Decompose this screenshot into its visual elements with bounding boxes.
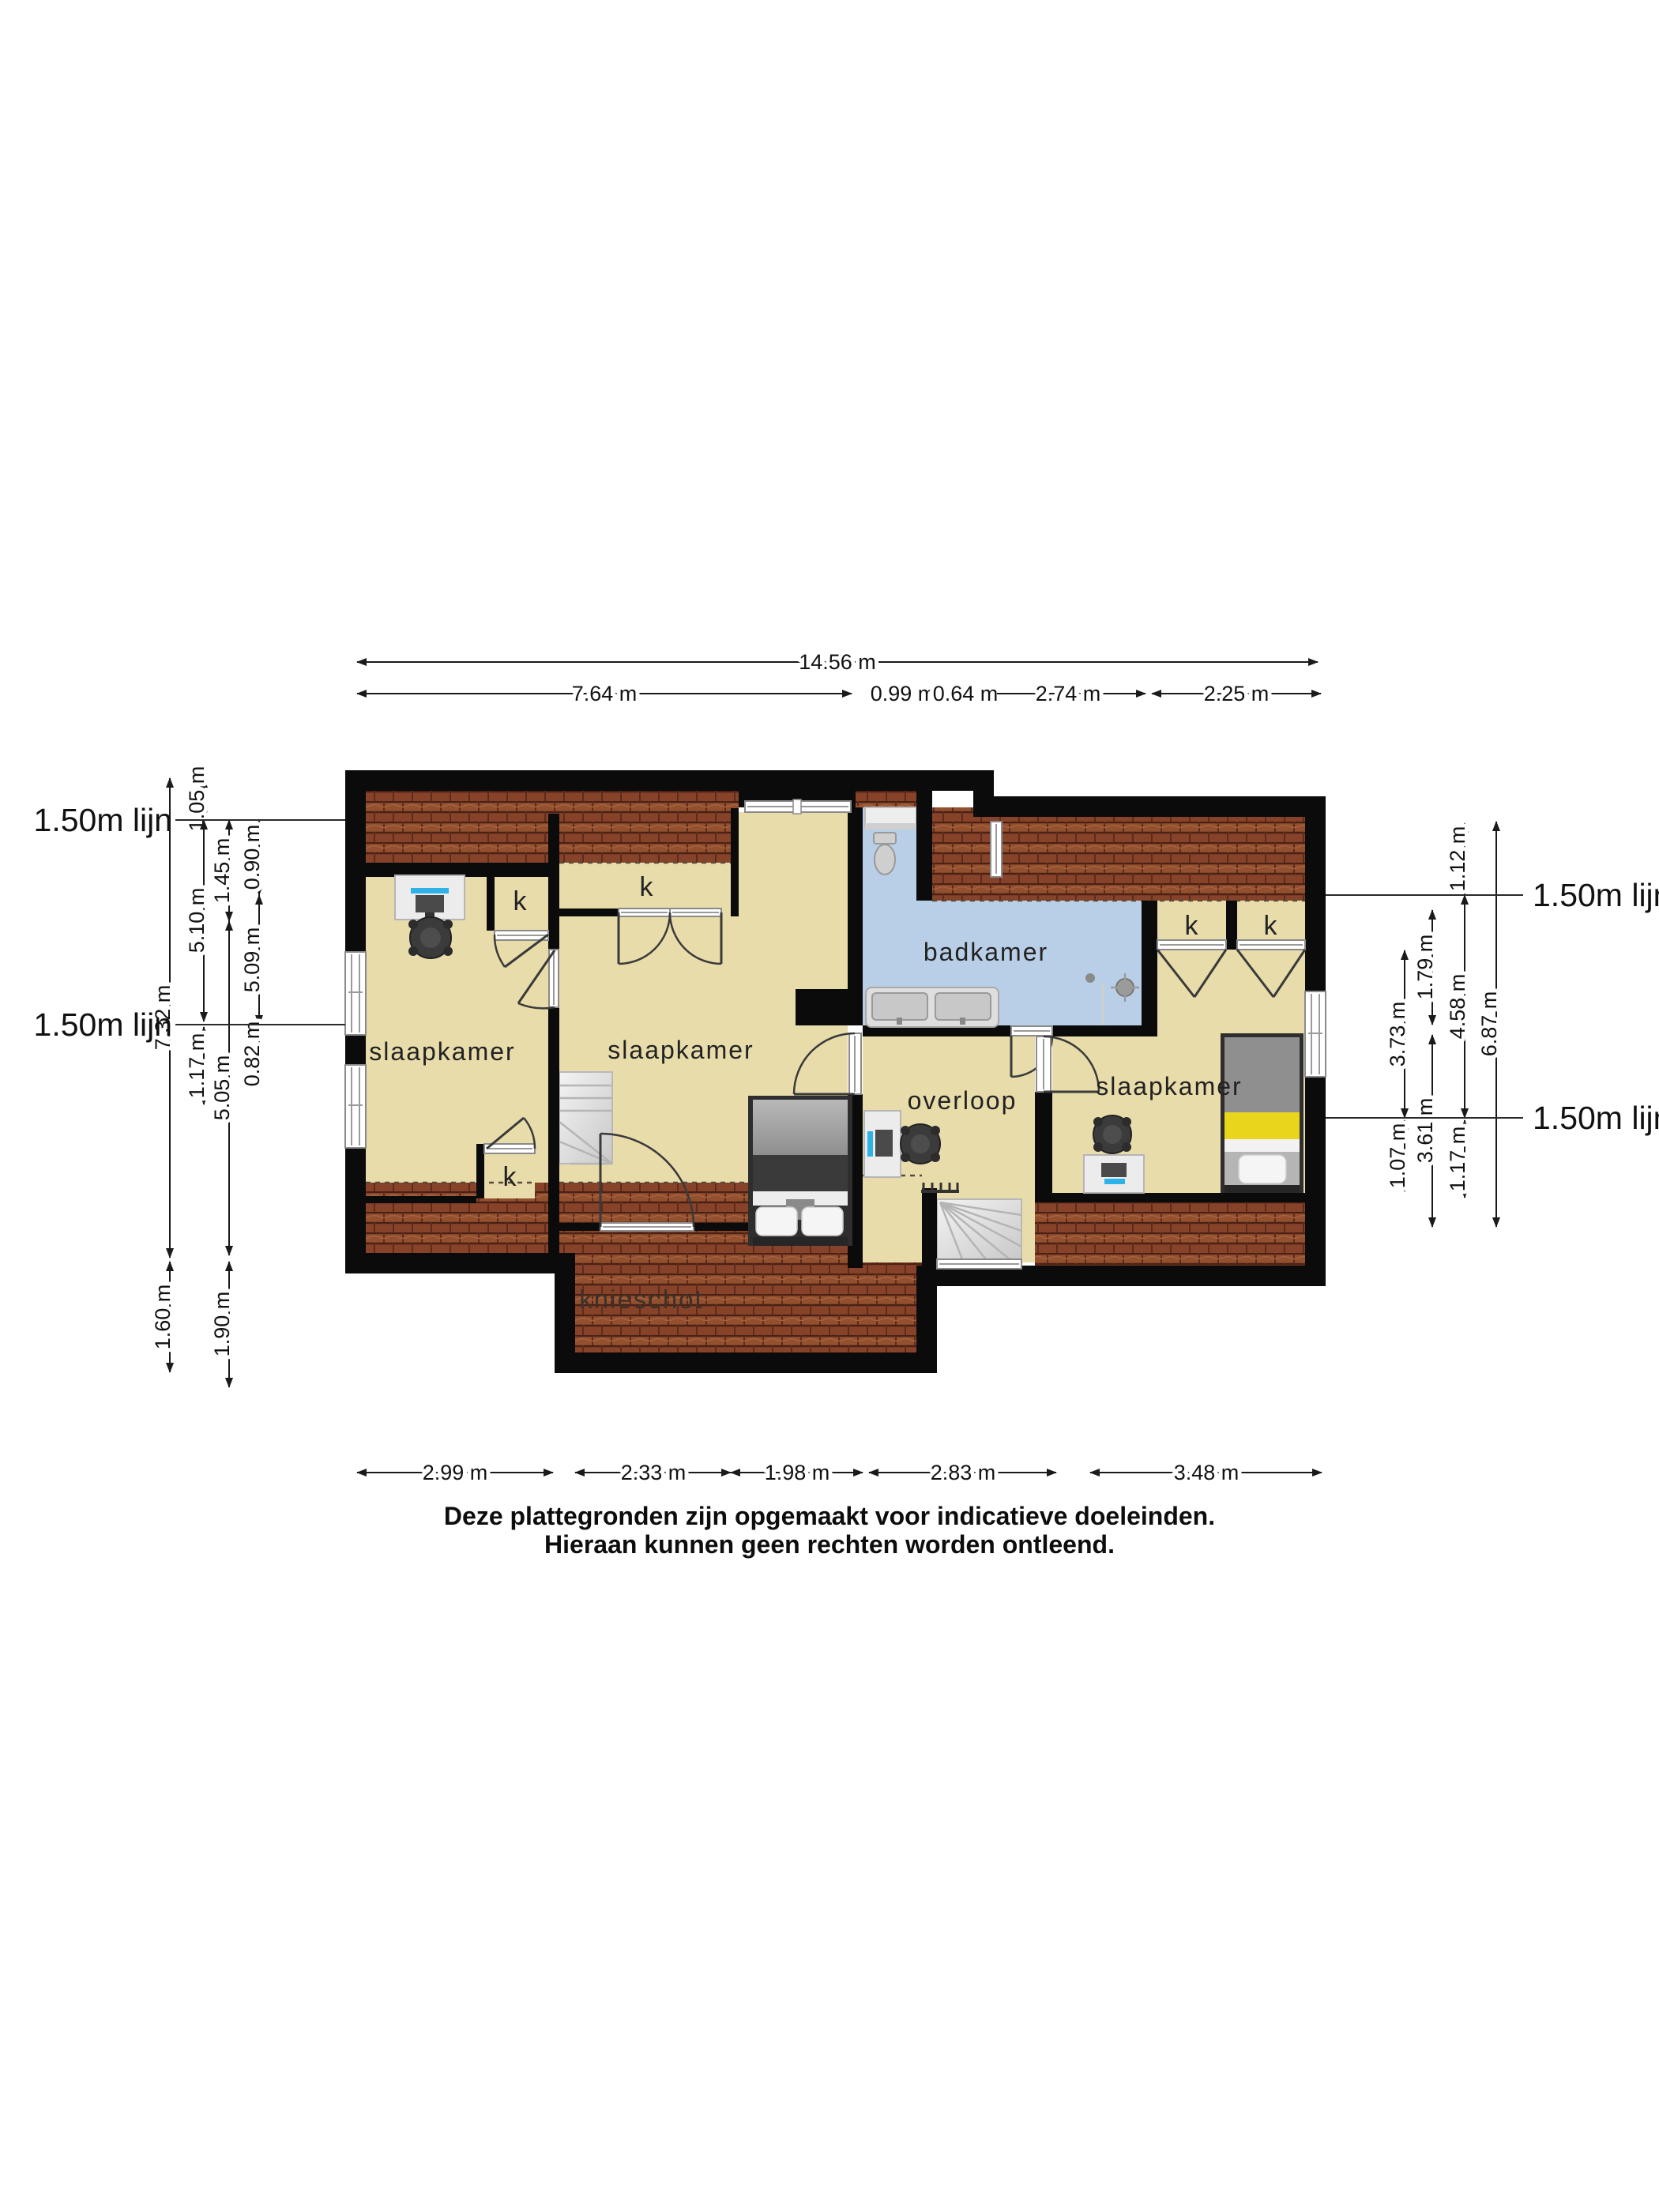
dim-label-top-1: 7.64 m	[572, 682, 638, 705]
dim-label-right-112: 1.12 m	[1446, 826, 1469, 892]
closet-label-left-bottom: k	[503, 1162, 517, 1192]
toilet	[874, 833, 896, 875]
dim-label-bottom-3: 1.98 m	[765, 1461, 830, 1484]
office-chair-bedroom-right	[1093, 1115, 1131, 1153]
dim-label-left-510: 5.10 m	[185, 888, 209, 954]
dim-label-bottom-5: 3.48 m	[1174, 1461, 1240, 1484]
closet-label-center: k	[640, 872, 654, 902]
dim-label-bottom-2: 2.33 m	[621, 1461, 687, 1484]
window-step-wall	[991, 822, 1002, 877]
dim-label-left-505: 5.05 m	[210, 1055, 234, 1121]
dim-label-top-total: 14.56 m	[799, 650, 876, 674]
bed-double-center	[748, 1096, 852, 1246]
knee-wall-left	[366, 1196, 476, 1203]
bed-single-right	[1221, 1033, 1303, 1193]
dim-label-left-509: 5.09 m	[240, 927, 264, 993]
roof-tiles-bottom-right	[1035, 1198, 1305, 1266]
disclaimer-line-1: Deze plattegronden zijn opgemaakt voor i…	[444, 1502, 1215, 1530]
closet-left-bottom-stub	[476, 1144, 484, 1198]
bed-accent-yellow	[1224, 1112, 1300, 1139]
closet-left-top-wall	[487, 863, 495, 931]
floor-bedroom-left	[366, 877, 548, 1183]
desk-bedroom-right	[1084, 1155, 1144, 1193]
dim-label-bottom-4: 2.83 m	[931, 1461, 996, 1484]
wall-bedroom-bathroom	[848, 863, 863, 1025]
room-label-bedroom-center: slaapkamer	[608, 1036, 754, 1064]
dim-label-right-361: 3.61 m	[1413, 1098, 1437, 1164]
dim-label-right-687: 6.87 m	[1477, 991, 1501, 1057]
bathroom-dormer-sill	[865, 823, 916, 829]
wall-left-center-lower	[548, 1007, 559, 1253]
monitor-accent	[867, 1131, 873, 1157]
dim-label-right-373: 3.73 m	[1386, 1002, 1409, 1067]
dim-label-top-5: 2.25 m	[1204, 682, 1270, 705]
double-sink	[866, 987, 999, 1027]
stairs-landing-sill	[937, 1259, 1021, 1269]
closet-right-divider	[1226, 901, 1237, 950]
wall-nook-right	[916, 791, 932, 901]
closet-center-right-wall	[731, 808, 739, 916]
disclaimer: Deze plattegronden zijn opgemaakt voor i…	[444, 1502, 1215, 1559]
height-line-label-left-top: 1.50m lijn	[34, 802, 172, 838]
extension-wall-bottom	[555, 1352, 937, 1373]
window-top-double	[745, 799, 851, 814]
height-line-label-right-top: 1.50m lijn	[1533, 877, 1659, 913]
dim-label-right-107: 1.07 m	[1386, 1123, 1409, 1189]
dim-label-top-3: 0.64 m	[933, 682, 999, 705]
knee-wall-right	[1035, 1193, 1305, 1202]
knee-wall-center-left	[555, 1223, 600, 1231]
roof-tiles-top-right	[932, 807, 1305, 901]
dim-label-top-2: 0.99 m	[871, 682, 936, 705]
window-right	[1305, 991, 1326, 1077]
wall-landing-bedroom-right	[1035, 1092, 1052, 1202]
room-label-bedroom-left: slaapkamer	[369, 1037, 515, 1066]
height-line-label-left-bottom: 1.50m lijn	[34, 1006, 172, 1043]
office-chair-bedroom-left	[408, 917, 453, 958]
desk-landing	[864, 1111, 901, 1177]
office-chair-landing	[901, 1124, 940, 1164]
dim-label-right-458: 4.58 m	[1446, 974, 1469, 1040]
outer-wall-bottom-left	[345, 1253, 575, 1273]
dim-label-left-190: 1.90 m	[210, 1292, 234, 1357]
room-label-bedroom-right: slaapkamer	[1096, 1072, 1242, 1100]
room-label-bathroom: badkamer	[924, 938, 1048, 966]
disclaimer-line-2: Hieraan kunnen geen rechten worden ontle…	[544, 1530, 1115, 1559]
floor-plan-svg: slaapkamer slaapkamer slaapkamer badkame…	[0, 0, 1659, 2212]
room-label-landing: overloop	[908, 1086, 1018, 1115]
height-line-label-right-bottom: 1.50m lijn	[1533, 1100, 1659, 1136]
wall-bathroom-bedroom-right	[1142, 901, 1157, 1036]
dim-label-left-160: 1.60 m	[151, 1285, 175, 1350]
monitor-accent	[411, 888, 449, 893]
dim-label-left-117: 1.17 m	[185, 1033, 209, 1099]
room-label-knee-wall: knieschot	[579, 1285, 703, 1314]
stairs-left-wall	[922, 1188, 937, 1266]
outer-wall-top-left	[345, 770, 994, 791]
dim-label-bottom-1: 2.99 m	[423, 1461, 488, 1484]
window-left-1	[345, 952, 366, 1035]
wall-nook-left-upper	[848, 807, 863, 863]
closet-label-right-2: k	[1264, 911, 1278, 941]
dim-label-left-082: 0.82 m	[240, 1021, 264, 1087]
dim-label-left-145: 1.45 m	[210, 838, 234, 904]
closet-label-left-top: k	[513, 886, 528, 916]
desk-bedroom-left	[395, 875, 465, 920]
dim-label-left-105: 1.05 m	[185, 766, 209, 832]
floor-bedroom-center-notch	[739, 812, 848, 867]
closet-label-right-1: k	[1185, 911, 1199, 941]
wall-left-center-upper	[548, 814, 559, 950]
dim-label-left-090: 0.90 m	[240, 825, 264, 890]
monitor-accent	[1104, 1179, 1125, 1184]
window-left-2	[345, 1065, 366, 1148]
dim-label-right-117: 1.17 m	[1446, 1127, 1469, 1192]
stairs-center-bedroom	[559, 1072, 612, 1164]
closet-center-bottom-wall	[559, 908, 619, 916]
outer-wall-top-right	[994, 796, 1326, 817]
dim-label-top-4: 2.74 m	[1036, 682, 1101, 705]
stairs-landing	[937, 1199, 1021, 1259]
wall-sink-stub	[796, 989, 848, 1025]
outer-wall-step	[973, 770, 994, 817]
dim-label-right-179: 1.79 m	[1413, 935, 1437, 1000]
